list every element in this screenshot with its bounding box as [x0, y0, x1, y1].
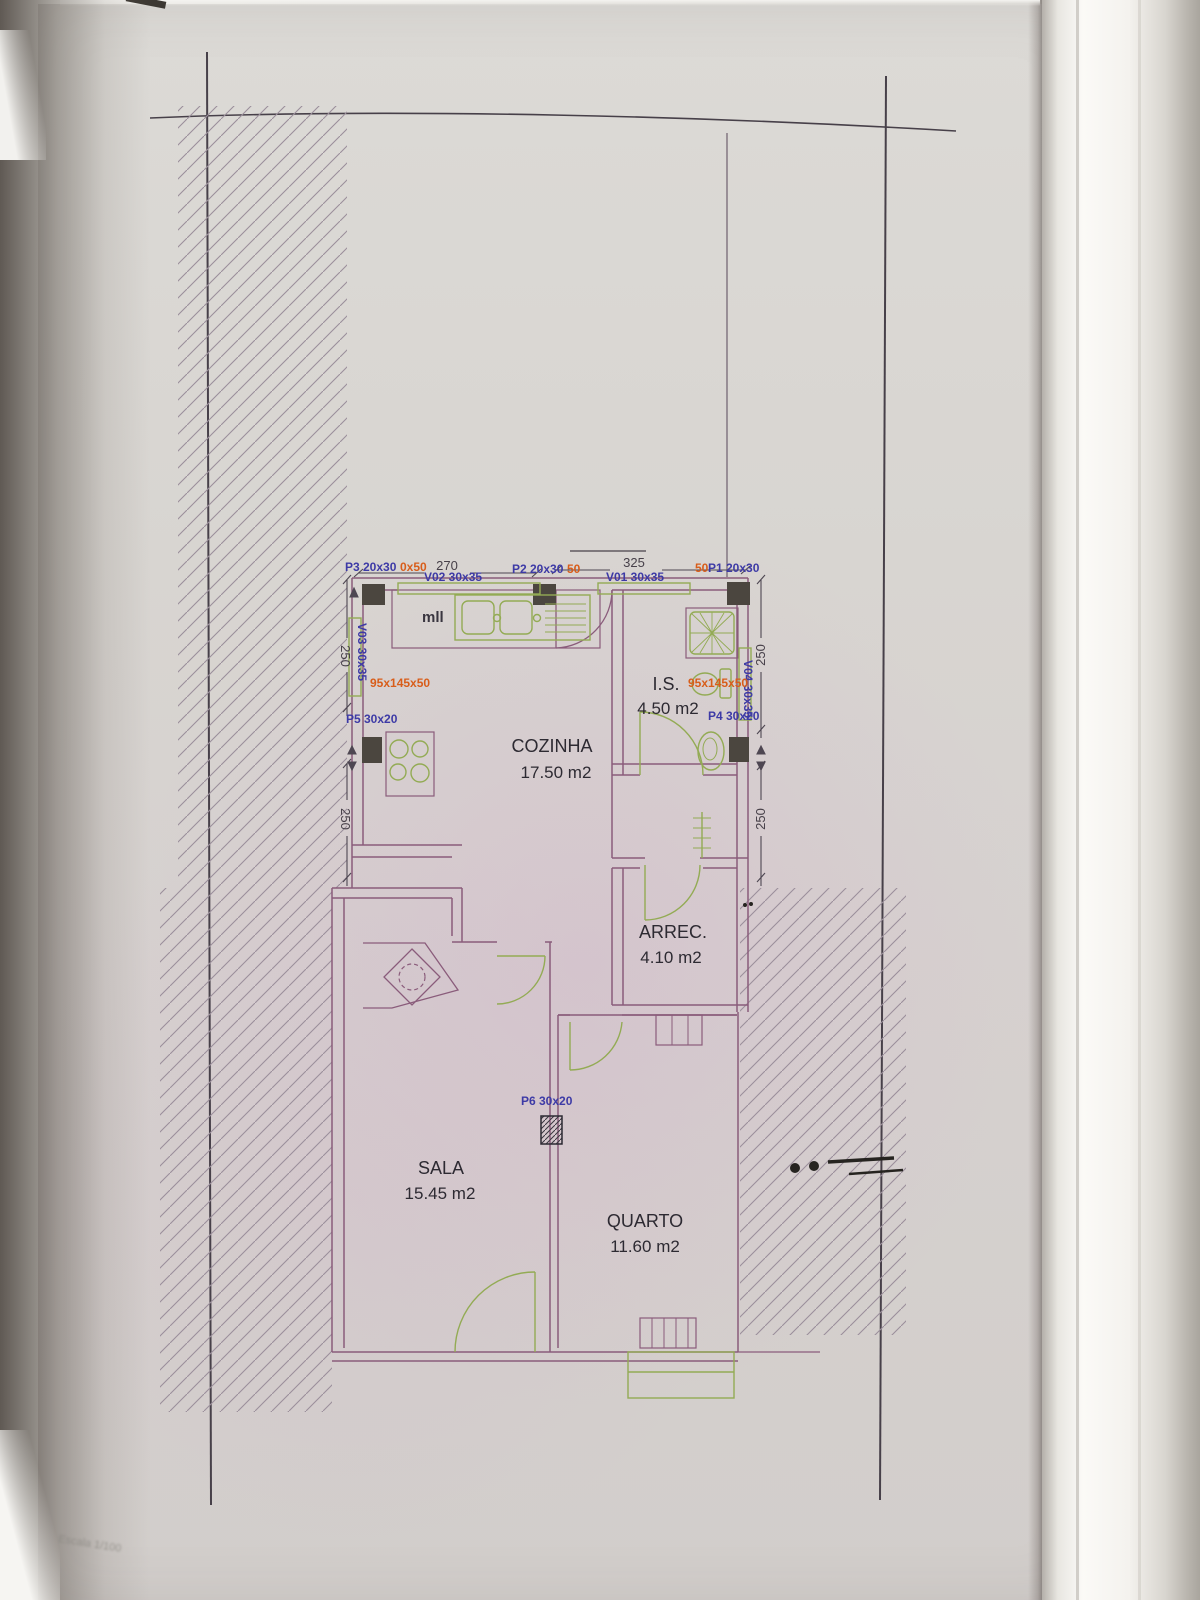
bench: [628, 1352, 734, 1398]
room-area-arrec: 4.10 m2: [640, 948, 701, 967]
hatch-regions: [160, 106, 906, 1412]
pillar: [362, 584, 385, 605]
pillar: [727, 582, 750, 605]
room-area-sala: 15.45 m2: [405, 1184, 476, 1203]
opening-label-v01: V01 30x35: [606, 570, 664, 584]
opening-label-p1: P1 20x30: [708, 561, 760, 575]
room-label-cozinha: COZINHA: [512, 736, 593, 756]
wardrobe: [656, 1015, 702, 1045]
p6-opening-symbol: [541, 1116, 562, 1144]
room-area-cozinha: 17.50 m2: [521, 763, 592, 782]
dim-left-lower: 250: [338, 808, 353, 830]
door-arc-bathroom: [640, 712, 703, 775]
dim-top-right: 325: [623, 555, 645, 570]
opening-label-p4: P4 30x20: [708, 709, 760, 723]
room-area-is: 4.50 m2: [637, 699, 698, 718]
counter-annotation: mll: [422, 609, 444, 626]
radiator-grill: [640, 1318, 696, 1348]
pillar: [729, 737, 749, 762]
opening-label-v02: V02 30x35: [424, 570, 482, 584]
kitchen-sink: [455, 595, 590, 640]
hatch-left-lower: [160, 888, 332, 1412]
door-arc-arrec: [645, 865, 700, 920]
hatch-left-upper: [178, 106, 347, 888]
door-arc-quarto: [570, 1022, 622, 1070]
pillar: [362, 737, 382, 763]
room-area-quarto: 11.60 m2: [610, 1237, 680, 1256]
sill-note-right: 95x145x50: [688, 676, 748, 690]
hatch-right-lower: [740, 888, 906, 1335]
opening-label-p3: P3 20x30: [345, 560, 397, 574]
room-label-is: I.S.: [652, 674, 679, 694]
dim-left-upper: 250: [338, 645, 353, 667]
floor-plan-drawing: COZINHA 17.50 m2 I.S. 4.50 m2 ARREC. 4.1…: [0, 0, 1200, 1600]
dim-right-lower: 250: [753, 808, 768, 830]
room-label-arrec: ARREC.: [639, 922, 707, 942]
sill-note-left: 95x145x50: [370, 676, 430, 690]
floor-plan-photo: Escala 1/100: [0, 0, 1200, 1600]
opening-label-p2: P2 20x30: [512, 562, 564, 576]
door-arc-sala: [497, 956, 545, 1004]
opening-label-p6: P6 30x20: [521, 1094, 573, 1108]
shower: [690, 612, 734, 654]
opening-label-p5: P5 30x20: [346, 712, 398, 726]
sill-note-p1: 50: [695, 561, 709, 575]
room-label-quarto: QUARTO: [607, 1211, 683, 1231]
sill-note-p3: 0x50: [400, 560, 427, 574]
opening-label-v03: V03 30x35: [355, 623, 369, 681]
window-v02: [398, 583, 540, 594]
sill-note-p2: 50: [567, 562, 581, 576]
stove: [390, 740, 429, 782]
door-arc-sala-south: [455, 1272, 535, 1352]
door-arc-entrance: [556, 590, 612, 648]
towel-radiator: [693, 812, 711, 858]
room-label-sala: SALA: [418, 1158, 464, 1178]
